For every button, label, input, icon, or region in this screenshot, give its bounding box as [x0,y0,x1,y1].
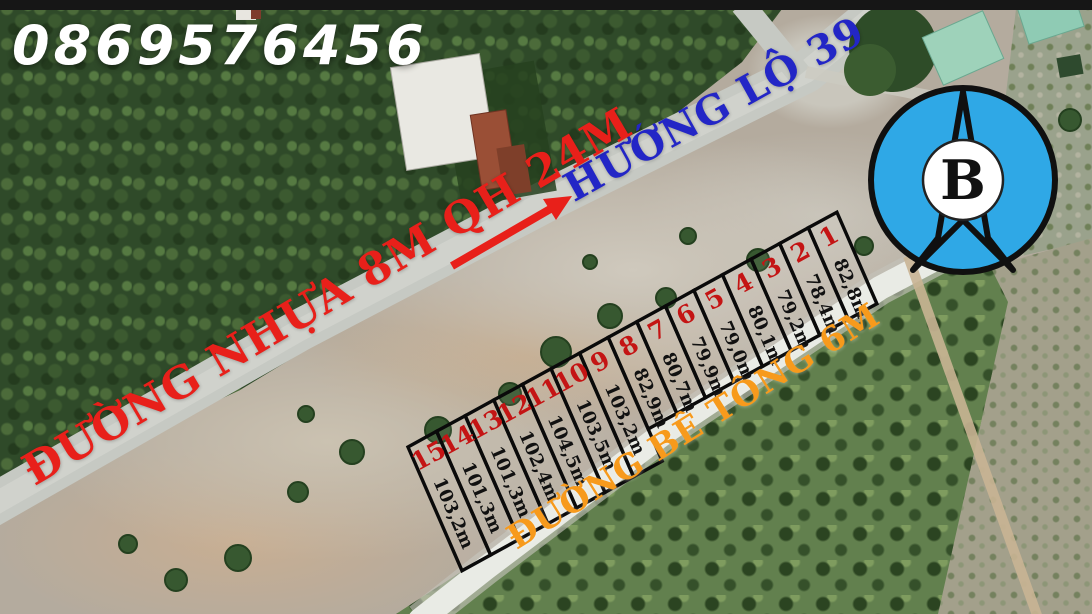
teal-roof-house [922,11,1003,85]
compass-label: B [940,148,986,212]
compass-north: B [871,88,1055,272]
plot-block: 182,8m278,4m379,2m480,1m579,0m679,9m780,… [406,212,877,571]
top-black-bar [0,0,1092,10]
phone-watermark: 0869576456 [12,14,428,77]
dirt-path [908,256,1038,614]
aerial-photo-listing: 182,8m278,4m379,2m480,1m579,0m679,9m780,… [0,0,1092,614]
green-shed [1056,54,1083,78]
